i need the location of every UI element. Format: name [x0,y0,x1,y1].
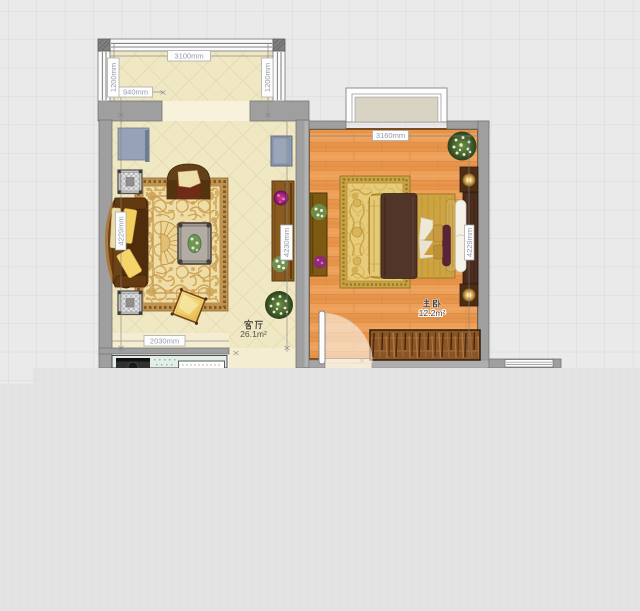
svg-text:1200mm: 1200mm [109,63,118,92]
svg-text:4230mm: 4230mm [282,228,291,257]
svg-text:1200mm: 1200mm [263,63,272,92]
svg-text:3160mm: 3160mm [376,131,405,140]
svg-text:4229mm: 4229mm [116,216,125,245]
svg-text:26.1m²: 26.1m² [240,329,267,339]
svg-text:2030mm: 2030mm [150,337,179,346]
svg-text:940mm: 940mm [123,88,148,97]
svg-text:3100mm: 3100mm [174,51,203,60]
svg-text:12.2m²: 12.2m² [419,308,446,318]
svg-text:4229mm: 4229mm [465,228,474,257]
